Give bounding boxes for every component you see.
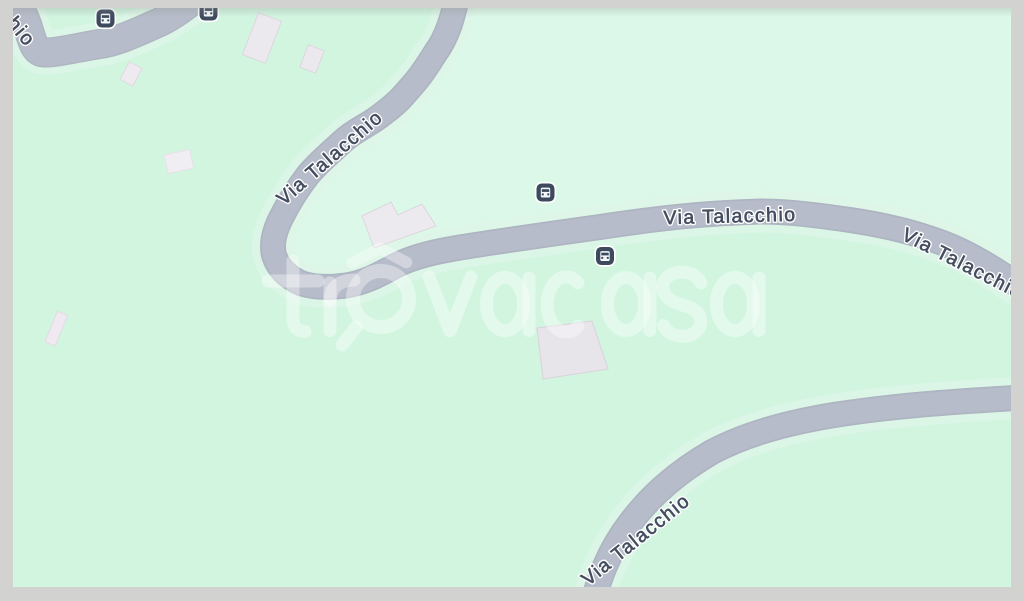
svg-text:Via Talacchio: Via Talacchio: [663, 204, 797, 229]
